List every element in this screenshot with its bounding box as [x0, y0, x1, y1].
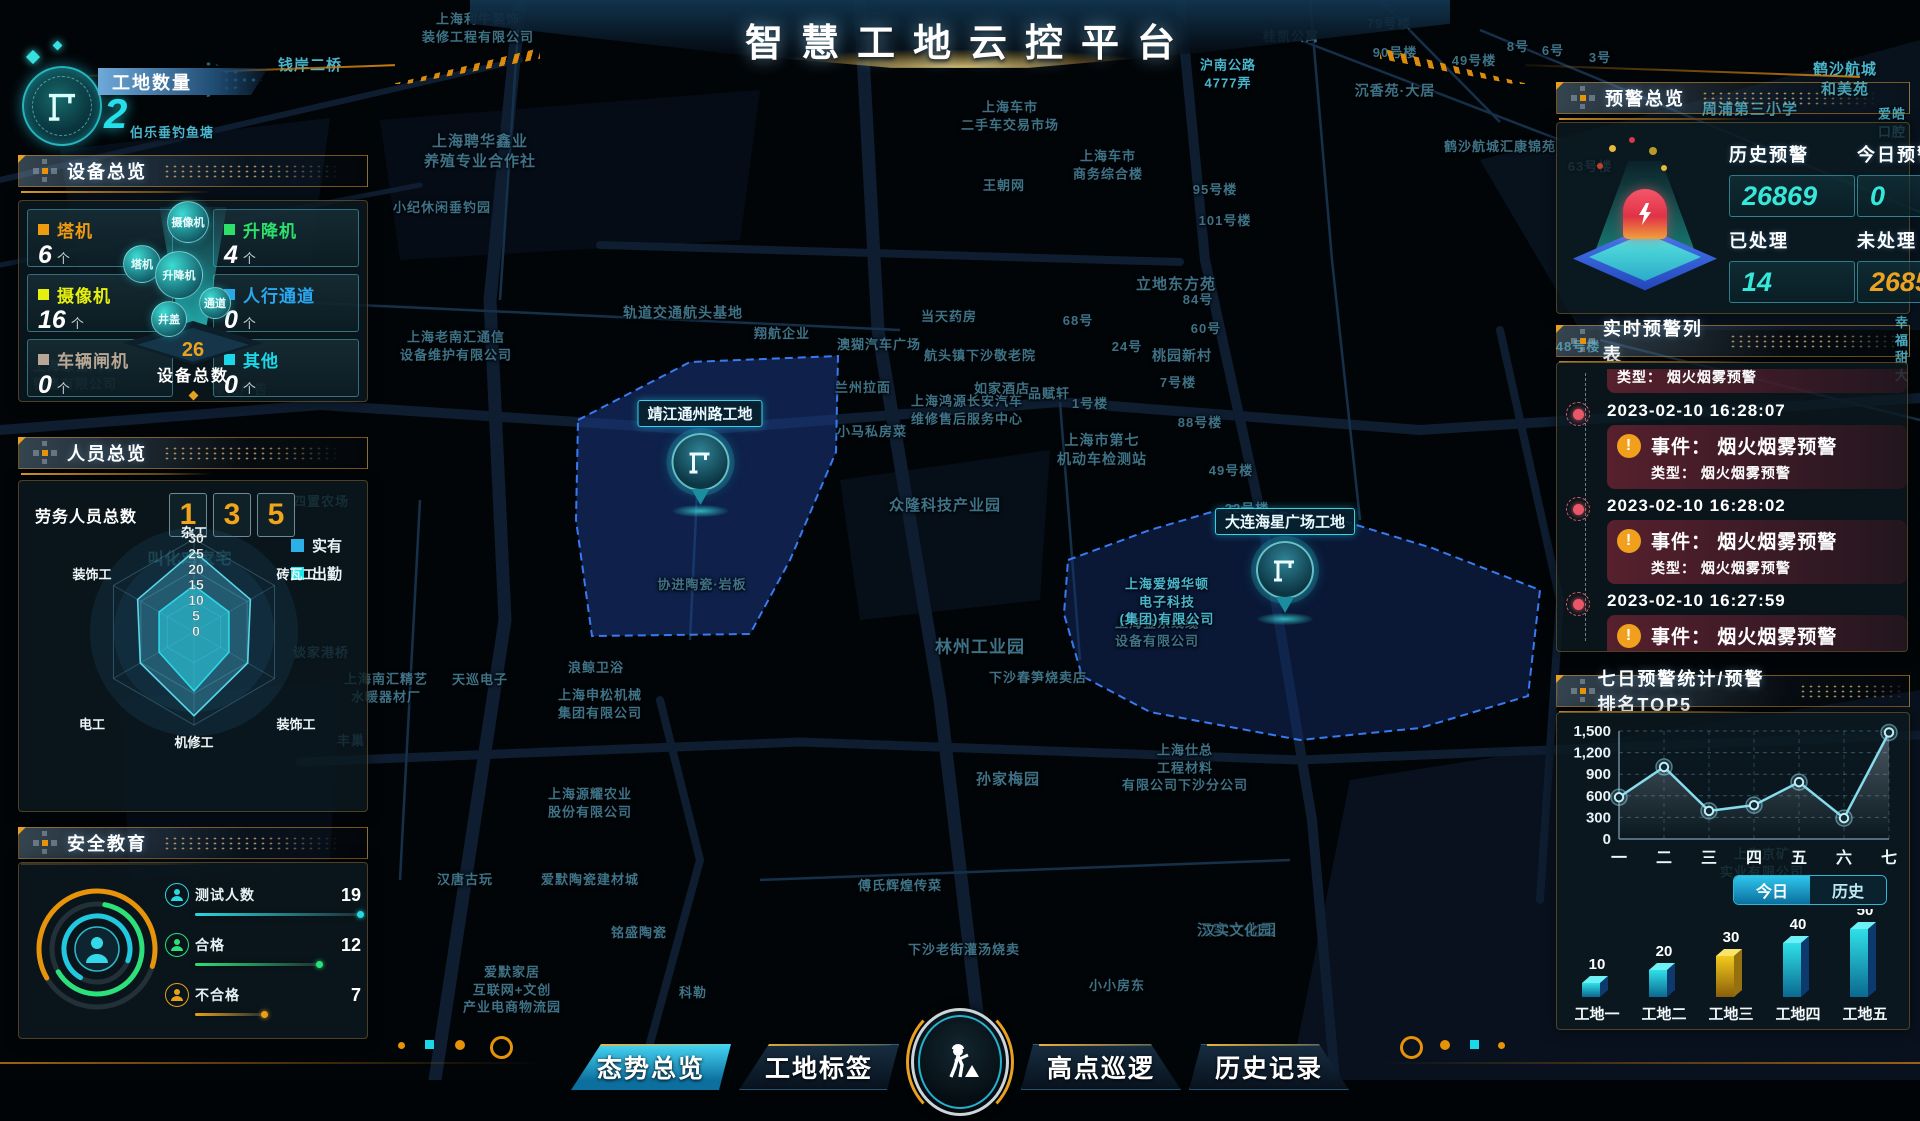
- alarm-event: !事件： 烟火烟雾预警: [1617, 527, 1897, 554]
- top5-bar-chart: 10工地一20工地二30工地三40工地四50工地五: [1561, 909, 1901, 1027]
- progress-line: [195, 1013, 265, 1016]
- map-label: 小纪休闲垂钓园: [393, 199, 491, 217]
- line-end-dot: [316, 961, 323, 968]
- device-unit: 个: [57, 381, 70, 396]
- header-dots-icon: [1729, 334, 1909, 349]
- funnel-bubble-通道: 通道: [199, 287, 231, 319]
- map-label: 上海仕总 工程材料 有限公司下沙分公司: [1122, 742, 1248, 795]
- radar-axis-label: 电工: [79, 717, 105, 732]
- map-label: 众隆科技产业园: [889, 496, 1001, 516]
- line-xtick-label: 七: [1881, 849, 1897, 867]
- tab-态势总览[interactable]: 态势总览: [571, 1044, 731, 1090]
- map-label: 上海聘华鑫业 养殖专业合作社: [424, 132, 536, 173]
- header-dots-icon: [163, 164, 343, 179]
- warning-icon: !: [1617, 529, 1641, 553]
- map-label: 49号楼: [1209, 462, 1253, 480]
- personnel-radar-chart: 杂工砖瓦工装饰工机修工电工装饰工302520151050: [19, 521, 367, 793]
- map-label: 爱默陶瓷建材城: [541, 871, 639, 889]
- weekly-panel-header: 七日预警统计/预警排名TOP5: [1556, 675, 1910, 707]
- deco-dot-icon: [455, 1040, 465, 1050]
- map-label: 下沙春笋烧卖店: [989, 669, 1087, 687]
- map-label: 当天药房: [921, 308, 977, 326]
- funnel-bubble-摄像机: 摄像机: [167, 201, 209, 243]
- safety-panel-title: 安全教育: [67, 830, 147, 856]
- site-pin-label: 靖江通州路工地: [637, 400, 762, 427]
- header-dots-icon: [1799, 684, 1909, 699]
- alarm-entry[interactable]: 2023-02-10 16:27:59!事件： 烟火烟雾预警类型： 烟火烟雾预警: [1557, 591, 1907, 652]
- alarm-overview-title: 预警总览: [1605, 85, 1685, 111]
- tab-历史记录[interactable]: 历史记录: [1189, 1044, 1349, 1090]
- bar3d-工地三: [1716, 949, 1742, 997]
- map-label: 上海车市 商务综合楼: [1073, 147, 1143, 182]
- header-dots-icon: [1701, 91, 1881, 106]
- bottom-line-right: [1375, 1062, 1920, 1064]
- map-label: 品赋轩: [1028, 385, 1070, 403]
- map-label: 轨道交通航头基地: [623, 304, 743, 323]
- map-label: 汉唐古玩: [437, 871, 493, 889]
- crane-icon: [671, 433, 729, 491]
- deco-dot-icon: [1498, 1042, 1505, 1049]
- alarm-dot-icon: [1566, 592, 1590, 616]
- device-total: 26 设备总数: [153, 339, 233, 399]
- alarm-event: !事件： 烟火烟雾预警: [1617, 622, 1897, 649]
- map-label: 上海爱姆华顿 电子科技 (集团)有限公司: [1120, 576, 1215, 629]
- personnel-panel: 劳务人员总数 135 实有出勤 杂工砖瓦工装饰工机修工电工装饰工30252015…: [18, 480, 368, 812]
- site-pin-jingjiang[interactable]: 靖江通州路工地: [637, 400, 762, 517]
- safety-row-合格: 合格12: [165, 933, 361, 966]
- header-dots-icon: [163, 446, 343, 461]
- safety-donut-chart: [29, 881, 165, 1017]
- bar-value-label: 10: [1589, 956, 1606, 973]
- person-icon: [165, 883, 189, 907]
- bar-category-label: 工地四: [1775, 1005, 1820, 1023]
- alarm-overview-header: 预警总览: [1556, 82, 1910, 114]
- map-label: 60号: [1191, 320, 1221, 338]
- alarm-time: 2023-02-10 16:28:02: [1607, 496, 1907, 516]
- warning-icon: !: [1617, 434, 1641, 458]
- funnel-bubble-升降机: 升降机: [155, 251, 203, 299]
- alarm-stat-value: 14: [1729, 261, 1855, 303]
- map-label: 浪鲸卫浴: [568, 659, 624, 677]
- map-label: 翔航企业: [754, 325, 810, 343]
- radar-axis-label: 装饰工: [71, 567, 111, 582]
- line-ytick-label: 900: [1586, 766, 1611, 783]
- line-ytick-label: 0: [1603, 831, 1611, 848]
- alarm-stat-历史预警: 历史预警26869: [1729, 141, 1853, 217]
- device-name-label: 车辆闸机: [57, 347, 129, 372]
- alarm-stat-label: 未处理: [1857, 227, 1920, 253]
- radar-tick-label: 10: [188, 592, 204, 608]
- line-data-point: [1795, 778, 1803, 786]
- device-total-value: 26: [153, 339, 233, 362]
- line-data-point: [1615, 793, 1623, 801]
- line-data-point: [1660, 763, 1668, 771]
- map-label: 汉实文化园: [1202, 922, 1272, 940]
- safety-panel-header: 安全教育: [18, 827, 368, 859]
- map-label: 68号: [1063, 312, 1093, 330]
- alarm-time: 2023-02-10 16:27:59: [1607, 591, 1907, 611]
- bottom-tab-bar: 态势总览工地标签高点巡逻历史记录: [567, 1008, 1353, 1090]
- radar-axis-label: 装饰工: [275, 717, 315, 732]
- map-label: 傅氏辉煌传菜: [858, 877, 942, 895]
- radar-axis-label: 机修工: [174, 735, 213, 750]
- site-pin-dalian[interactable]: 大连海星广场工地: [1215, 508, 1355, 625]
- device-unit: 个: [71, 316, 84, 331]
- map-label: 88号楼: [1178, 414, 1222, 432]
- bar-category-label: 工地三: [1708, 1005, 1753, 1023]
- alarm-stat-已处理: 已处理14: [1729, 227, 1853, 303]
- alarm-stat-label: 历史预警: [1729, 141, 1853, 167]
- header-dots-icon: [163, 836, 343, 851]
- radar-tick-label: 30: [188, 530, 204, 546]
- toggle-历史[interactable]: 历史: [1810, 876, 1886, 904]
- crane-icon: [1256, 541, 1314, 599]
- bar3d-工地五: [1850, 922, 1876, 997]
- toggle-今日[interactable]: 今日: [1734, 876, 1810, 904]
- personnel-panel-title: 人员总览: [67, 440, 147, 466]
- bar-category-label: 工地五: [1842, 1005, 1887, 1023]
- alarm-card: !事件： 烟火烟雾预警类型： 烟火烟雾预警: [1607, 425, 1907, 489]
- safety-row-value: 12: [321, 935, 361, 956]
- safety-row-不合格: 不合格7: [165, 983, 361, 1016]
- device-name-label: 摄像机: [57, 282, 111, 307]
- alarm-stat-label: 今日预警: [1857, 141, 1920, 167]
- alarm-entry-partial: 类型： 烟火烟雾预警: [1607, 369, 1907, 393]
- safety-row-测试人数: 测试人数19: [165, 883, 361, 916]
- header-squares-icon: [1571, 682, 1589, 700]
- alarm-event: !事件： 烟火烟雾预警: [1617, 432, 1897, 459]
- safety-row-label: 测试人数: [195, 885, 321, 905]
- map-label: 孙家梅园: [976, 770, 1040, 790]
- progress-line: [195, 913, 361, 916]
- alarm-entry[interactable]: 2023-02-10 16:28:07!事件： 烟火烟雾预警类型： 烟火烟雾预警: [1557, 401, 1907, 489]
- device-name-label: 塔机: [57, 217, 93, 242]
- device-color-square-icon: [38, 289, 49, 300]
- bar3d-工地一: [1582, 976, 1608, 997]
- line-ytick-label: 1,500: [1573, 723, 1611, 740]
- radar-tick-label: 20: [188, 561, 204, 577]
- bar3d-工地四: [1783, 936, 1809, 997]
- header-squares-icon: [33, 444, 59, 462]
- patrol-badge[interactable]: [911, 1008, 1009, 1116]
- radar-tick-label: 25: [188, 546, 204, 562]
- radar-tick-label: 15: [188, 577, 204, 593]
- map-label: 1号楼: [1072, 395, 1108, 413]
- construction-worker-icon: [939, 1041, 981, 1083]
- page-title: 智慧工地云控平台: [0, 12, 1920, 67]
- map-label: 协进陶瓷·岩板: [657, 576, 746, 594]
- alarm-list-header: 实时预警列表: [1556, 325, 1910, 357]
- device-panel-title: 设备总览: [67, 158, 147, 184]
- pin-tail: [691, 489, 709, 505]
- warning-icon: !: [1617, 624, 1641, 648]
- safety-panel: 测试人数19合格12不合格7: [18, 862, 368, 1039]
- pin-tail: [1276, 597, 1294, 613]
- alarm-event-text: 事件： 烟火烟雾预警: [1651, 622, 1837, 649]
- alarm-stat-未处理: 未处理26855: [1857, 227, 1920, 303]
- today-history-toggle: 今日历史: [1733, 875, 1887, 905]
- weekly-panel: 03006009001,2001,500一二三四五六七 今日历史 10工地一20…: [1556, 712, 1910, 1030]
- bar3d-工地二: [1649, 963, 1675, 997]
- line-ytick-label: 1,200: [1573, 745, 1611, 762]
- alarm-event-text: 事件： 烟火烟雾预警: [1651, 432, 1837, 459]
- radar-axis-label: 砖瓦工: [276, 567, 315, 582]
- tab-工地标签[interactable]: 工地标签: [739, 1044, 899, 1090]
- deco-square-icon: [425, 1040, 434, 1049]
- line-xtick-label: 二: [1656, 850, 1672, 867]
- line-data-point: [1750, 801, 1758, 809]
- alarm-card: !事件： 烟火烟雾预警类型： 烟火烟雾预警: [1607, 520, 1907, 584]
- alarm-time: 2023-02-10 16:28:07: [1607, 401, 1907, 421]
- alarm-dot-icon: [1566, 497, 1590, 521]
- map-label: 上海市第七 机动车检测站: [1057, 431, 1147, 469]
- map-label: 小马私房菜: [837, 423, 907, 441]
- radar-tick-label: 0: [192, 623, 200, 639]
- alarm-card: !事件： 烟火烟雾预警类型： 烟火烟雾预警: [1607, 615, 1907, 652]
- weekly-panel-title: 七日预警统计/预警排名TOP5: [1597, 665, 1783, 717]
- device-color-square-icon: [38, 224, 49, 235]
- map-label: 上海老南汇通信 设备维护有限公司: [400, 328, 512, 363]
- map-label: 林州工业园: [935, 637, 1025, 660]
- header-squares-icon: [1571, 89, 1597, 107]
- line-data-point: [1840, 814, 1848, 822]
- map-label: 上海源耀农业 股份有限公司: [548, 785, 632, 820]
- alarm-stat-value: 0: [1857, 175, 1920, 217]
- line-xtick-label: 六: [1836, 848, 1852, 867]
- header-squares-icon: [33, 834, 59, 852]
- bottom-line-left: [0, 1062, 545, 1064]
- pin-glow: [1257, 613, 1313, 625]
- deco-ring-icon: [1400, 1036, 1423, 1059]
- map-label: 立地东方苑: [1136, 275, 1216, 295]
- map-label: 7号楼: [1160, 374, 1196, 392]
- map-label: 沉香苑·大居: [1355, 82, 1436, 101]
- weekly-line-chart: 03006009001,2001,500一二三四五六七: [1561, 721, 1901, 873]
- device-total-label: 设备总数: [153, 362, 233, 386]
- safety-row-label: 不合格: [195, 985, 321, 1005]
- line-end-dot: [357, 911, 364, 918]
- map-label: 澳猢汽车广场: [837, 336, 921, 354]
- line-xtick-label: 一: [1611, 850, 1627, 867]
- bar-value-label: 40: [1790, 916, 1807, 933]
- diamond-icon: [188, 391, 198, 401]
- alarm-event-text: 事件： 烟火烟雾预警: [1651, 527, 1837, 554]
- map-label: 铭盛陶瓷: [611, 924, 667, 942]
- bar-value-label: 50: [1857, 909, 1874, 919]
- map-label: 小小房东: [1089, 977, 1145, 995]
- alarm-overview-panel: 历史预警26869今日预警0已处理14未处理26855: [1556, 122, 1910, 314]
- map-label: 95号楼: [1193, 181, 1237, 199]
- safety-row-label: 合格: [195, 935, 321, 955]
- map-label: 24号: [1112, 338, 1142, 356]
- bar-value-label: 20: [1656, 943, 1673, 960]
- deco-square-icon: [1470, 1040, 1479, 1049]
- device-unit: 个: [57, 251, 70, 266]
- header-squares-icon: [1571, 332, 1595, 350]
- person-icon: [165, 983, 189, 1007]
- siren-icon: [1563, 131, 1723, 306]
- map-label: 航头镇下沙敬老院: [924, 347, 1036, 365]
- alarm-entry[interactable]: 2023-02-10 16:28:02!事件： 烟火烟雾预警类型： 烟火烟雾预警: [1557, 496, 1907, 584]
- device-color-square-icon: [38, 354, 49, 365]
- pin-glow: [672, 505, 728, 517]
- site-pin-label: 大连海星广场工地: [1215, 508, 1355, 535]
- map-label: 爱默家居 互联网+文创 产业电商物流园: [463, 964, 561, 1017]
- alarm-stat-今日预警: 今日预警0: [1857, 141, 1920, 217]
- map-label: 鹤沙航城汇康锦苑: [1444, 138, 1556, 156]
- map-label: 天巡电子: [452, 671, 508, 689]
- deco-dot-icon: [1440, 1040, 1450, 1050]
- device-panel-header: 设备总览: [18, 155, 368, 187]
- site-count-value: 2: [104, 90, 127, 138]
- safety-row-value: 7: [321, 985, 361, 1006]
- line-data-point: [1705, 807, 1713, 815]
- header-squares-icon: [33, 162, 59, 180]
- alarm-type: 类型： 烟火烟雾预警: [1651, 558, 1897, 578]
- radar-tick-label: 5: [192, 608, 200, 624]
- safety-row-value: 19: [321, 885, 361, 906]
- line-end-dot: [261, 1011, 268, 1018]
- personnel-panel-header: 人员总览: [18, 437, 368, 469]
- alarm-stat-value: 26855: [1857, 261, 1920, 303]
- map-label: 王朝网: [983, 177, 1025, 195]
- map-label: 上海申松机械 集团有限公司: [558, 686, 642, 721]
- device-panel: 塔机6个升降机4个摄像机16个人行通道0个车辆闸机0个其他0个 摄像机塔机升降机…: [18, 200, 368, 402]
- map-label: 如家酒店: [974, 380, 1030, 398]
- line-ytick-label: 300: [1586, 809, 1611, 826]
- map-label: 科勒: [679, 984, 707, 1002]
- person-icon: [165, 933, 189, 957]
- bar-value-label: 30: [1723, 929, 1740, 946]
- line-ytick-label: 600: [1586, 788, 1611, 805]
- bar-category-label: 工地一: [1574, 1005, 1619, 1023]
- alarm-list-title: 实时预警列表: [1603, 315, 1713, 367]
- deco-ring-icon: [490, 1036, 513, 1059]
- map-label: 伯乐垂钓鱼塘: [130, 124, 214, 142]
- line-xtick-label: 四: [1746, 850, 1762, 867]
- alarm-stat-value: 26869: [1729, 175, 1855, 217]
- funnel-bubble-井盖: 井盖: [151, 301, 187, 337]
- line-xtick-label: 五: [1791, 850, 1807, 867]
- map-label: 下沙老街灌汤烧卖: [908, 941, 1020, 959]
- map-label: 桃园新村: [1152, 347, 1212, 366]
- site-count-icon: [22, 66, 102, 146]
- alarm-dot-icon: [1566, 402, 1590, 426]
- map-label: 101号楼: [1199, 212, 1252, 230]
- deco-dot-icon: [398, 1042, 405, 1049]
- map-label: 上海车市 二手车交易市场: [961, 98, 1059, 133]
- map-label: 兰州拉面: [835, 379, 891, 397]
- alarm-list-panel: 类型： 烟火烟雾预警 2023-02-10 16:28:07!事件： 烟火烟雾预…: [1556, 362, 1908, 652]
- line-xtick-label: 三: [1701, 850, 1717, 867]
- alarm-stat-label: 已处理: [1729, 227, 1853, 253]
- bar-category-label: 工地二: [1641, 1005, 1686, 1023]
- progress-line: [195, 963, 320, 966]
- alarm-type: 类型： 烟火烟雾预警: [1651, 463, 1897, 483]
- tab-高点巡逻[interactable]: 高点巡逻: [1021, 1044, 1181, 1090]
- line-data-point: [1885, 728, 1893, 736]
